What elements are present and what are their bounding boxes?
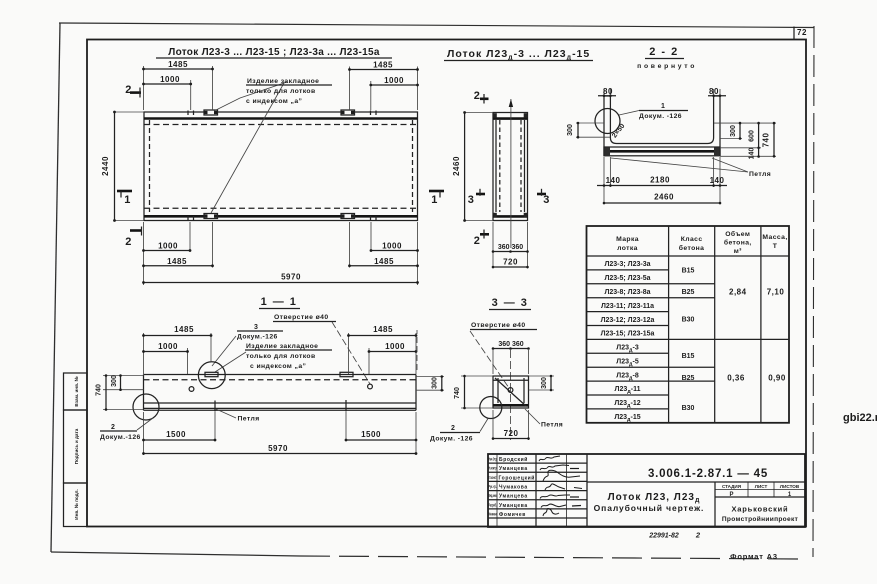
svg-text:5970: 5970 (281, 273, 301, 282)
svg-text:720: 720 (503, 258, 518, 267)
svg-text:с индексом „а”: с индексом „а” (246, 98, 302, 105)
svg-text:2: 2 (125, 236, 133, 248)
svg-text:ЛИСТ: ЛИСТ (755, 484, 768, 489)
svg-text:1: 1 (661, 103, 665, 110)
svg-text:2: 2 (125, 84, 133, 96)
svg-text:Петля: Петля (541, 422, 563, 429)
svg-text:Докум. -126: Докум. -126 (430, 436, 473, 443)
svg-text:Петля: Петля (238, 416, 260, 423)
svg-text:Л23-3; Л23-3а: Л23-3; Л23-3а (604, 261, 650, 268)
svg-text:1000: 1000 (158, 342, 178, 351)
svg-text:Л23-8; Л23-8а: Л23-8; Л23-8а (604, 289, 650, 296)
svg-text:Объем: Объем (725, 230, 750, 238)
svg-text:140: 140 (749, 148, 756, 160)
svg-text:В30: В30 (682, 317, 695, 324)
svg-text:ЛИСТОВ: ЛИСТОВ (780, 484, 800, 489)
svg-text:3: 3 (468, 194, 476, 206)
svg-text:Отверстие ø40: Отверстие ø40 (471, 322, 526, 329)
svg-text:Вед.инж: Вед.инж (489, 493, 497, 498)
svg-text:1: 1 (431, 194, 439, 206)
svg-text:только для лотков: только для лотков (246, 88, 316, 95)
svg-text:Н.контр: Н.контр (489, 466, 497, 471)
svg-text:0,90: 0,90 (768, 374, 786, 383)
svg-text:Докум.-126: Докум.-126 (100, 434, 141, 441)
svg-text:1485: 1485 (167, 257, 187, 266)
svg-text:2: 2 (111, 424, 115, 431)
svg-text:1500: 1500 (166, 430, 186, 439)
svg-text:м³: м³ (734, 248, 742, 255)
svg-text:бетона: бетона (679, 244, 705, 252)
svg-text:Нач.Отд: Нач.Отд (489, 457, 497, 462)
svg-text:Изделие закладное: Изделие закладное (246, 343, 318, 350)
svg-text:7,10: 7,10 (767, 288, 785, 297)
svg-text:Взам. инв. №: Взам. инв. № (74, 376, 79, 406)
svg-text:1000: 1000 (384, 76, 404, 85)
svg-text:2460: 2460 (654, 193, 674, 202)
svg-text:Чумакова: Чумакова (499, 485, 528, 491)
svg-text:740: 740 (454, 387, 461, 399)
svg-text:140: 140 (710, 176, 725, 185)
svg-text:Горошецкий: Горошецкий (499, 474, 535, 481)
svg-text:Разраб.: Разраб. (489, 502, 497, 507)
svg-text:Класс: Класс (681, 236, 703, 243)
svg-text:Л23-11; Л23-11а: Л23-11; Л23-11а (601, 303, 654, 310)
svg-text:1000: 1000 (385, 342, 405, 351)
svg-text:Уманцева: Уманцева (499, 494, 528, 500)
svg-text:Гл.конст: Гл.конст (489, 475, 497, 480)
svg-text:Л23-15; Л23-15а: Л23-15; Л23-15а (601, 331, 655, 338)
svg-text:80: 80 (709, 87, 719, 96)
svg-text:2: 2 (451, 425, 455, 432)
svg-text:2×50: 2×50 (611, 123, 626, 140)
svg-text:Л23-12; Л23-12а: Л23-12; Л23-12а (601, 317, 655, 324)
svg-text:1000: 1000 (382, 242, 402, 251)
svg-text:Докум.-126: Докум.-126 (237, 334, 278, 341)
svg-text:Опалубочный чертеж.: Опалубочный чертеж. (594, 503, 705, 513)
svg-text:Фомичев: Фомичев (499, 512, 526, 518)
svg-text:2180: 2180 (650, 176, 670, 185)
svg-text:Р: Р (729, 492, 733, 498)
svg-text:Масса,: Масса, (762, 234, 787, 241)
svg-text:2440: 2440 (101, 156, 110, 176)
svg-text:Подпись и дата: Подпись и дата (74, 428, 79, 464)
svg-text:3: 3 (254, 324, 258, 331)
svg-text:3 — 3: 3 — 3 (492, 297, 529, 309)
svg-text:2 - 2: 2 - 2 (649, 46, 679, 58)
svg-text:лотка: лотка (617, 245, 638, 252)
svg-text:п о в е р н у т о: п о в е р н у т о (637, 63, 695, 70)
svg-text:Л23д-12: Л23д-12 (614, 400, 640, 409)
svg-text:Л23д-11: Л23д-11 (615, 386, 641, 395)
svg-text:Рук.-гр.: Рук.-гр. (489, 484, 497, 489)
svg-text:2460: 2460 (452, 156, 461, 176)
svg-text:Л23д-3: Л23д-3 (616, 345, 639, 354)
svg-text:Харьковский: Харьковский (732, 505, 789, 514)
svg-text:1: 1 (124, 194, 132, 206)
svg-text:Изделие закладное: Изделие закладное (247, 78, 319, 85)
svg-text:Л23д-8: Л23д-8 (616, 373, 639, 382)
svg-text:бетона,: бетона, (724, 239, 752, 247)
svg-text:Л23-5; Л23-5а: Л23-5; Л23-5а (604, 275, 650, 282)
svg-text:2: 2 (474, 235, 482, 247)
svg-text:2: 2 (695, 531, 701, 540)
svg-text:360 360: 360 360 (498, 244, 523, 251)
svg-text:В30: В30 (682, 405, 695, 412)
svg-text:Лоток Л23д-3 ... Л23д-15: Лоток Л23д-3 ... Л23д-15 (447, 48, 590, 62)
svg-text:740: 740 (96, 384, 103, 396)
svg-text:0,36: 0,36 (727, 374, 745, 383)
svg-text:Т: Т (773, 243, 778, 250)
svg-text:300: 300 (432, 377, 439, 389)
svg-text:1 — 1: 1 — 1 (261, 296, 298, 308)
svg-text:Марка: Марка (616, 236, 639, 243)
svg-text:300: 300 (567, 124, 574, 136)
svg-text:gbi22.ru: gbi22.ru (843, 412, 877, 424)
svg-text:Петля: Петля (749, 171, 771, 178)
svg-text:600: 600 (749, 130, 756, 142)
svg-text:Отверстие ø40: Отверстие ø40 (274, 314, 329, 321)
svg-text:1500: 1500 (361, 430, 381, 439)
svg-text:72: 72 (797, 28, 807, 37)
svg-text:5970: 5970 (268, 444, 288, 453)
svg-text:В25: В25 (682, 375, 695, 382)
svg-text:140: 140 (606, 176, 621, 185)
svg-text:только для лотков: только для лотков (246, 353, 316, 360)
svg-text:300: 300 (730, 125, 737, 137)
svg-text:720: 720 (504, 429, 519, 438)
svg-text:Промстройниипроект: Промстройниипроект (722, 515, 799, 523)
svg-text:2: 2 (474, 90, 482, 102)
svg-text:Лоток Л23-3 ... Л23-15 ; Л23-3: Лоток Л23-3 ... Л23-15 ; Л23-3а ... Л23-… (168, 47, 380, 58)
svg-text:Инв. № подл.: Инв. № подл. (74, 489, 79, 519)
svg-text:Докум. -126: Докум. -126 (639, 113, 682, 120)
svg-text:740: 740 (762, 133, 771, 148)
svg-text:1485: 1485 (174, 325, 194, 334)
svg-text:360 360: 360 360 (498, 341, 523, 348)
svg-text:Формат А3: Формат А3 (730, 552, 778, 561)
svg-text:Бродский: Бродский (499, 456, 528, 463)
svg-text:Уманцева: Уманцева (499, 466, 528, 472)
svg-text:22991-82: 22991-82 (648, 533, 679, 540)
svg-text:Уманцева: Уманцева (499, 503, 528, 509)
svg-text:СТАДИЯ: СТАДИЯ (722, 484, 741, 489)
svg-text:1485: 1485 (373, 325, 393, 334)
svg-text:Л23д-5: Л23д-5 (616, 359, 639, 368)
svg-text:80: 80 (603, 87, 613, 96)
svg-text:В15: В15 (682, 268, 695, 275)
svg-text:Инжен: Инжен (489, 512, 497, 517)
svg-text:1485: 1485 (374, 257, 394, 266)
svg-text:2,84: 2,84 (729, 288, 747, 297)
svg-text:3: 3 (543, 194, 551, 206)
svg-text:3.006.1-2.87.1 — 45: 3.006.1-2.87.1 — 45 (648, 468, 768, 480)
svg-text:В25: В25 (682, 289, 695, 296)
svg-text:300: 300 (541, 377, 548, 389)
svg-text:1485: 1485 (168, 60, 188, 69)
svg-text:В15: В15 (682, 353, 695, 360)
svg-text:1000: 1000 (158, 242, 178, 251)
svg-text:1485: 1485 (373, 61, 393, 70)
svg-text:с индексом „а”: с индексом „а” (250, 363, 306, 370)
svg-text:300: 300 (111, 375, 118, 387)
svg-text:Л23д-15: Л23д-15 (614, 414, 640, 423)
svg-text:1000: 1000 (160, 75, 180, 84)
